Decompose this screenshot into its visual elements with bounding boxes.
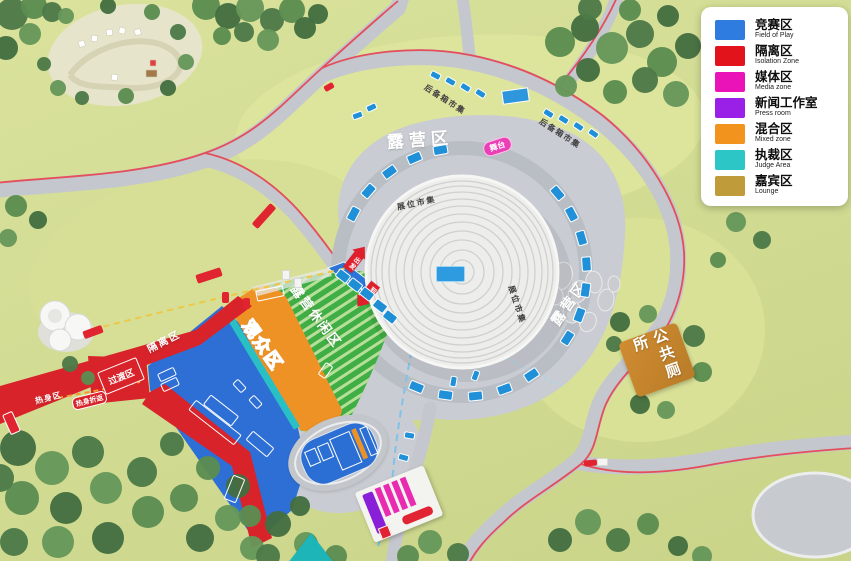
legend-item: 隔离区 Isolation Zone — [715, 45, 838, 66]
legend-en: Press room — [755, 110, 818, 118]
tent — [146, 70, 157, 77]
booth-marker — [467, 390, 483, 402]
tree — [0, 430, 36, 466]
tree — [603, 80, 627, 104]
tree — [50, 80, 66, 96]
legend-item: 执裁区 Judge Area — [715, 149, 838, 170]
legend-panel: 竞赛区 Field of Play 隔离区 Isolation Zone 媒体区… — [701, 7, 848, 206]
legend-en: Field of Play — [755, 32, 794, 40]
tree — [42, 526, 74, 558]
tent — [91, 35, 98, 42]
tree — [663, 81, 689, 107]
label-stage: 舞台 — [488, 139, 507, 154]
tent — [106, 29, 113, 36]
tree — [692, 546, 712, 561]
tree — [160, 432, 184, 456]
legend-en: Lounge — [755, 188, 793, 196]
legend-zh: 竞赛区 — [755, 19, 794, 32]
legend-item: 竞赛区 Field of Play — [715, 19, 838, 40]
tree — [170, 484, 198, 512]
tree — [58, 8, 74, 24]
tree — [0, 229, 17, 247]
legend-item: 新闻工作室 Press room — [715, 97, 838, 118]
tree — [575, 509, 601, 535]
legend-item: 媒体区 Media zone — [715, 71, 838, 92]
white-marker — [294, 278, 302, 288]
tree — [548, 528, 572, 552]
tree — [619, 0, 641, 21]
booth-marker — [579, 282, 591, 298]
tent — [150, 60, 156, 66]
tree — [639, 305, 657, 323]
tree — [215, 505, 241, 531]
legend-en: Mixed zone — [755, 136, 793, 144]
legend-zh: 新闻工作室 — [755, 97, 818, 110]
tent — [118, 27, 125, 34]
tree — [81, 371, 95, 385]
legend-item: 混合区 Mixed zone — [715, 123, 838, 144]
tree — [239, 505, 261, 527]
tree — [62, 356, 78, 372]
tent — [134, 28, 141, 35]
legend-swatch — [715, 124, 745, 144]
tree — [626, 20, 654, 48]
tree — [92, 522, 124, 554]
tree — [683, 325, 705, 347]
tree — [132, 496, 164, 528]
tree — [418, 530, 442, 554]
tree — [29, 211, 47, 229]
tree — [657, 401, 675, 419]
site-map: 露营区 露营区 露营休闲区 观众区 隔离区 热身区 展位市集 展位市集 后备箱市… — [0, 0, 851, 561]
red-marker — [243, 298, 250, 309]
tree — [144, 4, 160, 20]
tree — [178, 54, 194, 70]
legend-swatch — [715, 176, 745, 196]
tree — [35, 451, 69, 485]
tree — [0, 36, 18, 60]
legend-zh: 隔离区 — [755, 45, 799, 58]
tree — [290, 496, 310, 516]
tree — [90, 472, 122, 504]
tree — [692, 362, 712, 382]
booth-marker — [581, 256, 592, 272]
tree — [596, 32, 628, 64]
legend-zh: 混合区 — [755, 123, 793, 136]
tree — [606, 528, 630, 552]
legend-swatch — [715, 72, 745, 92]
tree — [545, 27, 575, 57]
tree — [19, 23, 41, 45]
tree — [37, 57, 51, 71]
tree — [630, 394, 650, 414]
legend-zh: 执裁区 — [755, 149, 793, 162]
tree — [170, 24, 186, 40]
tree — [726, 212, 746, 232]
tree — [632, 67, 658, 93]
white-marker — [597, 458, 608, 466]
tree — [196, 456, 220, 480]
legend-en: Judge Area — [755, 162, 793, 170]
legend-zh: 嘉宾区 — [755, 175, 793, 188]
red-marker — [222, 292, 229, 303]
tree — [668, 536, 688, 556]
legend-en: Isolation Zone — [755, 58, 799, 66]
tree — [555, 75, 577, 97]
white-marker — [282, 270, 290, 280]
tree — [710, 252, 726, 268]
red-marker — [584, 459, 597, 466]
tree — [72, 436, 104, 468]
legend-zh: 媒体区 — [755, 71, 793, 84]
tree — [610, 312, 630, 332]
teal-cone-marker — [288, 533, 334, 561]
tree — [308, 4, 328, 24]
legend-item: 嘉宾区 Lounge — [715, 175, 838, 196]
pond — [753, 473, 851, 557]
tree — [5, 195, 27, 217]
tent — [111, 74, 118, 81]
tree — [50, 492, 82, 524]
mound-center-marker — [436, 266, 465, 282]
legend-swatch — [715, 46, 745, 66]
tree — [75, 91, 89, 105]
tree — [675, 33, 701, 59]
legend-swatch — [715, 98, 745, 118]
legend-swatch — [715, 20, 745, 40]
tree — [213, 27, 231, 45]
legend-swatch — [715, 150, 745, 170]
tree — [186, 524, 214, 552]
tree — [127, 457, 157, 487]
tree — [160, 80, 176, 96]
legend-en: Media zone — [755, 84, 793, 92]
label-transition-zone: 过渡区 — [106, 365, 136, 387]
tree — [576, 58, 600, 82]
tree — [637, 513, 659, 535]
tree — [118, 88, 134, 104]
tree — [234, 22, 254, 42]
tree — [753, 231, 771, 249]
tree — [0, 528, 28, 556]
tree — [257, 29, 279, 51]
tree — [657, 5, 679, 27]
